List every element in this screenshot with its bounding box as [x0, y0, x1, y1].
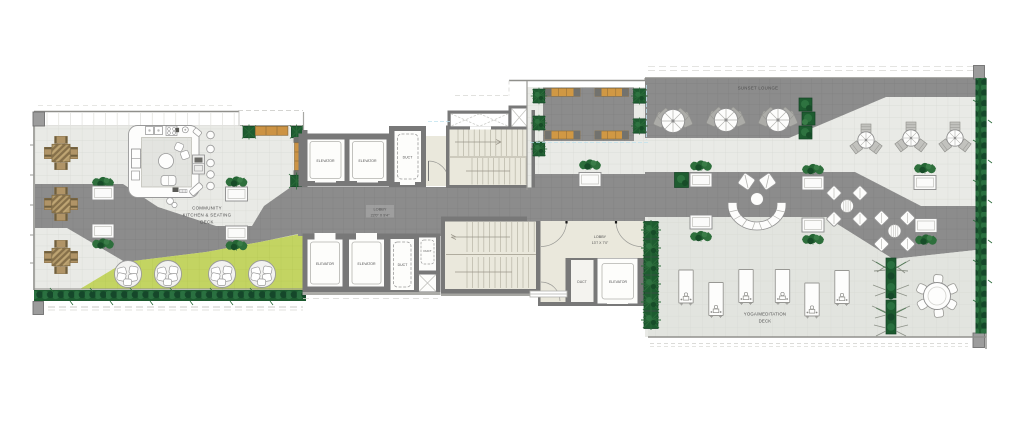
svg-text:KITCHEN & SEATING: KITCHEN & SEATING: [183, 213, 232, 218]
svg-text:ELEVATOR: ELEVATOR: [609, 280, 628, 284]
svg-text:ELEVATOR: ELEVATOR: [357, 262, 376, 266]
svg-text:ELEVATOR: ELEVATOR: [316, 262, 335, 266]
svg-text:LOBBY: LOBBY: [374, 207, 387, 212]
svg-text:DUCT: DUCT: [403, 156, 414, 160]
svg-text:DECK: DECK: [759, 319, 772, 324]
svg-text:SUNSET LOUNGE: SUNSET LOUNGE: [738, 86, 779, 91]
svg-text:ELEVATOR: ELEVATOR: [358, 159, 377, 163]
svg-text:LOBBY: LOBBY: [594, 235, 607, 239]
svg-text:DUCT: DUCT: [398, 263, 409, 267]
svg-text:22'0" X 9'4": 22'0" X 9'4": [371, 214, 390, 218]
svg-text:YOGA/MEDITATION: YOGA/MEDITATION: [744, 312, 786, 317]
svg-text:ELEVATOR: ELEVATOR: [316, 159, 335, 163]
svg-text:DUCT: DUCT: [577, 280, 586, 284]
svg-text:13'7 X 7'0": 13'7 X 7'0": [592, 241, 609, 245]
svg-text:DUCT: DUCT: [423, 249, 431, 253]
svg-text:COMMUNITY: COMMUNITY: [192, 206, 222, 211]
svg-text:DECK: DECK: [200, 220, 213, 225]
